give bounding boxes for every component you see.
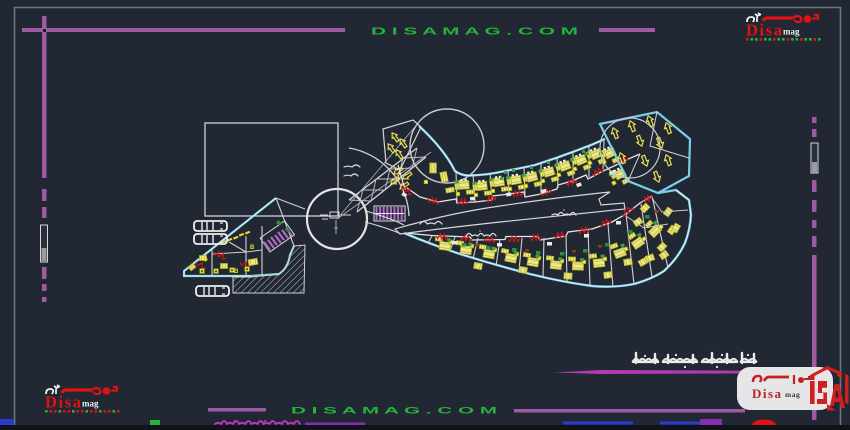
svg-text:B: B	[234, 269, 239, 275]
svg-text:B: B	[250, 245, 255, 251]
svg-text:Disa: Disa	[752, 386, 783, 401]
svg-text:D I S A M A G . C O M: D I S A M A G . C O M	[291, 406, 497, 416]
svg-text:Disa: Disa	[746, 21, 784, 40]
svg-text:D I S A M A G . C O M: D I S A M A G . C O M	[371, 27, 578, 38]
svg-text:mag: mag	[783, 27, 800, 37]
svg-text:mag: mag	[785, 390, 800, 399]
svg-text:mag: mag	[82, 399, 99, 409]
svg-text:Disa: Disa	[45, 393, 83, 412]
